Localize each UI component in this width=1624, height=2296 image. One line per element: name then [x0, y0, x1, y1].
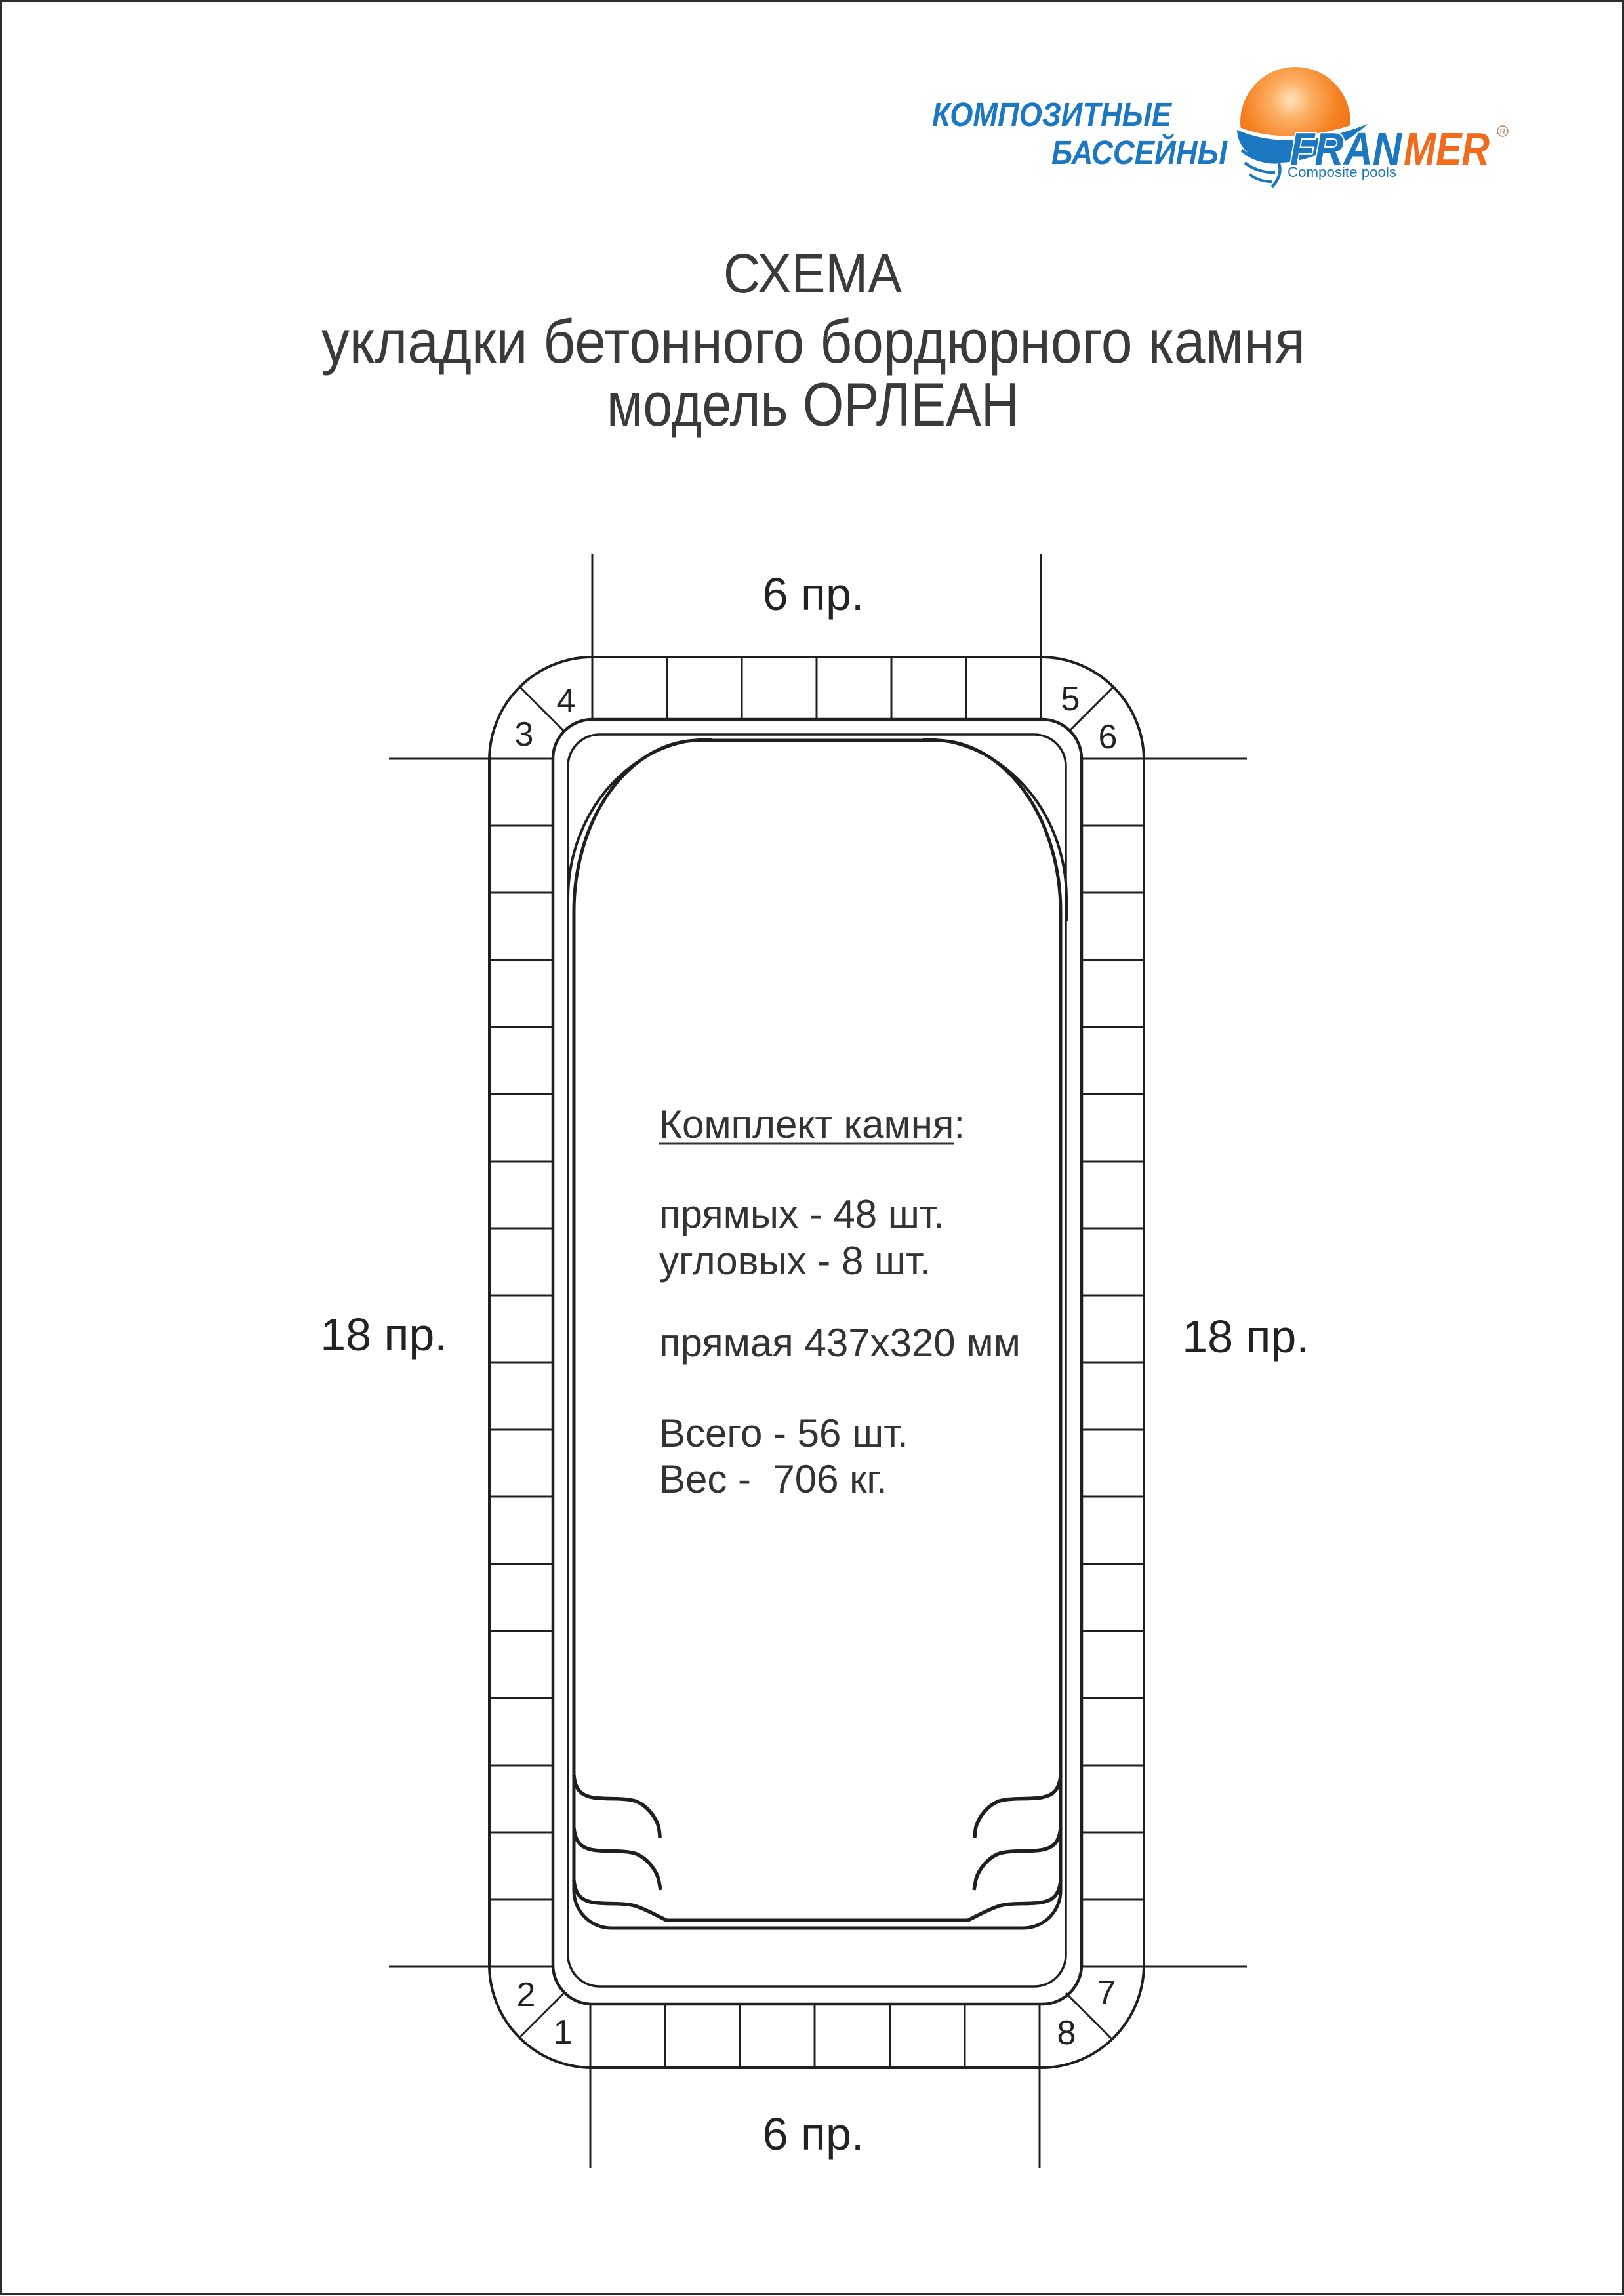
svg-text:СХЕМА: СХЕМА [723, 243, 902, 304]
svg-text:7: 7 [1097, 1974, 1116, 2012]
svg-text:1: 1 [554, 2013, 573, 2051]
svg-text:прямая 437х320 мм: прямая 437х320 мм [659, 1321, 1021, 1365]
svg-text:8: 8 [1057, 2014, 1076, 2052]
svg-text:Вес - 706 кг.: Вес - 706 кг. [659, 1457, 887, 1501]
svg-text:модель ОРЛЕАН: модель ОРЛЕАН [607, 370, 1019, 439]
svg-text:R: R [1500, 127, 1506, 136]
svg-text:БАССЕЙНЫ: БАССЕЙНЫ [1051, 132, 1228, 171]
svg-text:Комплект камня:: Комплект камня: [659, 1102, 965, 1146]
svg-text:укладки бетонного бордюрного к: укладки бетонного бордюрного камня [321, 307, 1305, 376]
svg-text:3: 3 [515, 715, 534, 754]
svg-text:6 пр.: 6 пр. [763, 569, 864, 620]
svg-text:Всего - 56 шт.: Всего - 56 шт. [659, 1411, 908, 1455]
svg-text:6: 6 [1099, 718, 1118, 756]
svg-text:18 пр.: 18 пр. [320, 1309, 447, 1360]
svg-text:4: 4 [557, 682, 576, 720]
svg-text:КОМПОЗИТНЫЕ: КОМПОЗИТНЫЕ [932, 96, 1173, 133]
svg-text:2: 2 [517, 1976, 536, 2014]
svg-text:5: 5 [1061, 680, 1080, 718]
svg-text:6 пр.: 6 пр. [763, 2108, 864, 2160]
svg-text:угловых - 8 шт.: угловых - 8 шт. [659, 1239, 931, 1283]
svg-text:Composite pools: Composite pools [1288, 164, 1396, 180]
svg-text:18 пр.: 18 пр. [1182, 1311, 1309, 1362]
svg-text:прямых - 48 шт.: прямых - 48 шт. [659, 1192, 944, 1236]
